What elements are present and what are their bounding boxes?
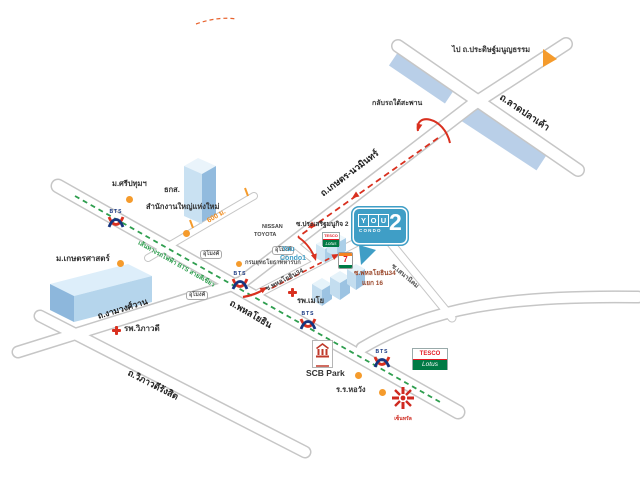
lotus-word: Lotus: [323, 240, 339, 247]
roads-layer: [0, 0, 640, 480]
temple-landmark-sign: [312, 340, 333, 368]
label-horwang-school: ร.ร.หอวัง: [336, 386, 366, 394]
label-nissan: NISSAN: [262, 224, 283, 230]
label-you-condo1-line1: You: [282, 246, 295, 254]
label-sripatum: ม.ศรีปทุมฯ: [112, 180, 147, 188]
temple-icon: [315, 343, 330, 359]
label-u-turn: กลับรถใต้สะพาน: [372, 100, 422, 108]
baac-marker-icon: [183, 230, 190, 237]
label-soi34-yaek16-line1: ซ.พหลโยธิน34: [354, 270, 396, 277]
tesco-word: TESCO: [323, 233, 339, 240]
label-mayo-hospital: รพ.เมโย: [297, 297, 324, 305]
label-baac-line1: ธกส.: [164, 186, 180, 194]
you2-condo-word: CONDO: [359, 228, 382, 233]
horwang-marker-ic on: [379, 389, 386, 396]
army-dept-marker-icon: [236, 261, 242, 267]
label-baac-line2: สำนักงานใหญ่แห่งใหม่: [146, 203, 219, 211]
balloon-body: Y O U 2 CONDO: [351, 206, 409, 246]
central-sunburst-icon: [390, 386, 416, 410]
label-vibhavadi-hospital: รพ.วิภาวดี: [124, 325, 160, 334]
letter-tile: U: [378, 214, 389, 227]
label-you-condo1-line2: Condo1: [280, 255, 306, 263]
label-toyota: TOYOTA: [254, 232, 276, 238]
seven-eleven-sign: 7: [338, 252, 353, 269]
scb-park-marker-icon: [355, 372, 362, 379]
label-to-pradit-manutham: ไป ถ.ประดิษฐ์มนูญธรรม: [452, 46, 530, 54]
route-hint-top: [196, 18, 236, 24]
bts-station-icon: BTS: [372, 350, 392, 374]
lotus-word: Lotus: [413, 360, 447, 370]
sripatum-marker-icon: [126, 196, 133, 203]
mayo-hospital-cross-icon: [288, 288, 297, 297]
label-soi34-yaek16-line2: แยก 16: [362, 280, 383, 287]
kasetsart-marker-icon: [117, 260, 124, 267]
label-soi-prasert-manukit2: ซ.ประเสริฐมนูกิจ 2: [296, 221, 349, 228]
vibhavadi-hospital-cross-icon: [112, 326, 121, 335]
bts-station-icon: BTS: [230, 272, 250, 296]
tesco-lotus-sign: TESCO Lotus: [412, 348, 448, 370]
bts-station-icon: BTS: [298, 312, 318, 336]
tesco-lotus-express-sign: TESCO Lotus: [322, 232, 340, 246]
map-canvas: ไป ถ.ประดิษฐ์มนูญธรรม ถ.ลาดปลาเค้า ถ.เกษ…: [0, 0, 640, 480]
you2-number: 2: [389, 209, 402, 236]
seven-word: 7: [339, 256, 352, 264]
label-scb-park: SCB Park: [306, 369, 345, 378]
label-central: เซ็นทรัล: [389, 415, 417, 423]
tesco-word: TESCO: [413, 349, 447, 360]
label-kasetsart: ม.เกษตรศาสตร์: [56, 255, 110, 264]
tunnel-pill: อุโมงค์: [186, 291, 208, 300]
tunnel-pill: อุโมงค์: [200, 250, 222, 259]
you2-condo-balloon: Y O U 2 CONDO: [351, 206, 409, 246]
bts-station-icon: BTS: [106, 210, 126, 234]
you-letter-tiles: Y O U: [358, 214, 388, 227]
central-landmark: เซ็นทรัล: [389, 386, 417, 423]
balloon-tail-icon: [356, 243, 378, 267]
